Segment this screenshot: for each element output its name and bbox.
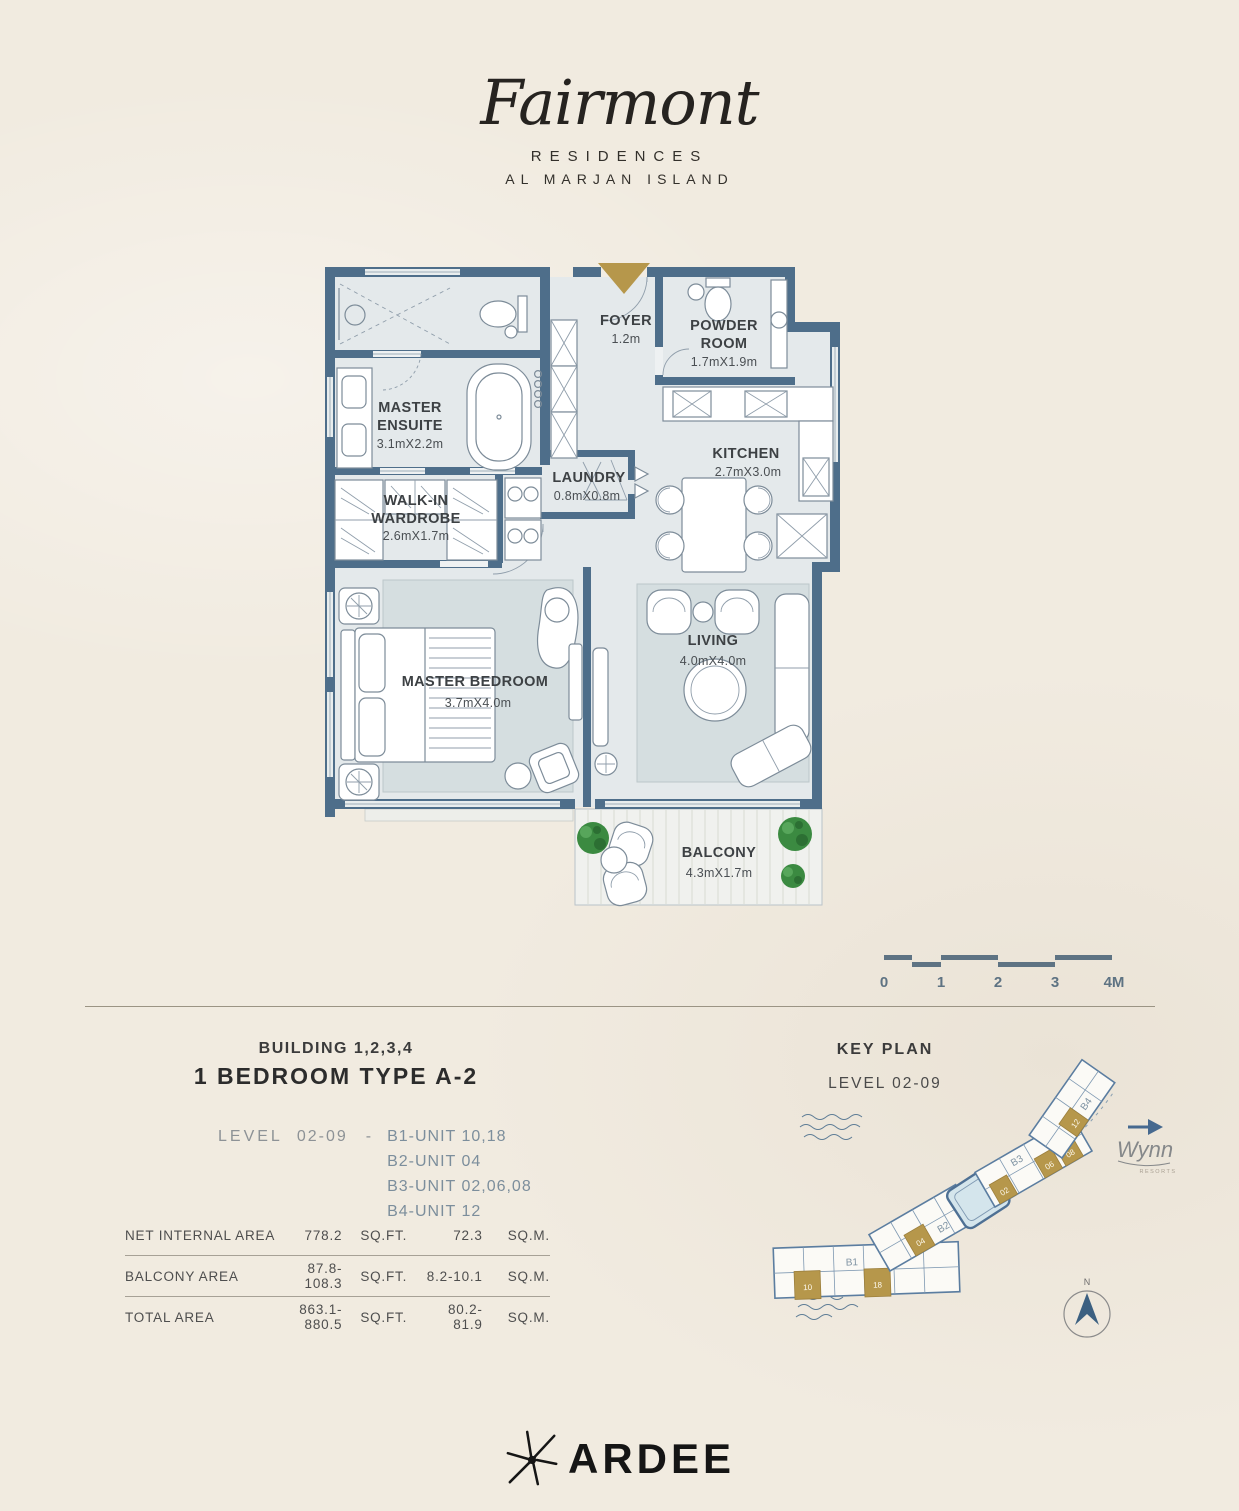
ardee-wordmark: ARDEE (568, 1435, 735, 1483)
svg-text:0.8mX0.8m: 0.8mX0.8m (554, 489, 621, 503)
brand-header: Fairmont RESIDENCES AL MARJAN ISLAND (0, 72, 1239, 187)
svg-text:1.2m: 1.2m (612, 332, 641, 346)
area-sqft-unit: SQ.FT. (342, 1269, 420, 1284)
scale-tick-1: 1 (937, 974, 945, 991)
unit-type-title: 1 BEDROOM TYPE A-2 (136, 1063, 536, 1090)
plant-icon (778, 817, 812, 851)
svg-text:ROOM: ROOM (701, 336, 748, 352)
area-sqm-unit: SQ.M. (483, 1228, 550, 1243)
svg-text:3.1mX2.2m: 3.1mX2.2m (377, 437, 444, 451)
brand-residences: RESIDENCES (0, 148, 1239, 165)
area-sqft-value: 863.1-880.5 (276, 1302, 343, 1332)
room-label-wardrobe: WALK-IN (384, 493, 449, 509)
area-sqm-value: 80.2-81.9 (421, 1302, 483, 1332)
table-row: TOTAL AREA 863.1-880.5 SQ.FT. 80.2-81.9 … (125, 1297, 550, 1337)
fairmont-logo: Fairmont (0, 72, 1239, 134)
building-label-b1: B1 (846, 1257, 859, 1268)
area-sqft-value: 778.2 (276, 1228, 343, 1243)
svg-text:4.3mX1.7m: 4.3mX1.7m (686, 866, 753, 880)
svg-text:2.7mX3.0m: 2.7mX3.0m (715, 465, 782, 479)
area-sqm-value: 8.2-10.1 (421, 1269, 483, 1284)
keyplan-building-b4: 12 B4 (1029, 1060, 1115, 1158)
unit-list: B1-UNIT 10,18 B2-UNIT 04 B3-UNIT 02,06,0… (387, 1128, 532, 1221)
keyplan-building-b1: 10 18 B1 (773, 1242, 960, 1300)
developer-logo: ARDEE (0, 1430, 1239, 1488)
svg-text:Wynn: Wynn (1117, 1137, 1173, 1162)
table-row: BALCONY AREA 87.8-108.3 SQ.FT. 8.2-10.1 … (125, 1256, 550, 1296)
room-label-laundry: LAUNDRY (552, 470, 625, 486)
area-row-label: TOTAL AREA (125, 1310, 276, 1325)
area-table: NET INTERNAL AREA 778.2 SQ.FT. 72.3 SQ.M… (125, 1215, 550, 1337)
plant-icon (577, 822, 609, 854)
area-row-label: BALCONY AREA (125, 1269, 276, 1284)
plant-icon (781, 864, 805, 888)
brand-island: AL MARJAN ISLAND (0, 171, 1239, 187)
ardee-star-icon (504, 1430, 562, 1488)
area-sqm-unit: SQ.M. (483, 1269, 550, 1284)
building-label: BUILDING 1,2,3,4 (136, 1040, 536, 1058)
floorplan-drawing: MASTER ENSUITE 3.1mX2.2m FOYER 1.2m POWD… (325, 262, 840, 912)
scale-tick-0: 0 (880, 974, 888, 991)
area-sqft-value: 87.8-108.3 (276, 1261, 343, 1291)
table-row: NET INTERNAL AREA 778.2 SQ.FT. 72.3 SQ.M… (125, 1215, 550, 1255)
scale-tick-2: 2 (994, 974, 1002, 991)
svg-text:ENSUITE: ENSUITE (377, 418, 443, 434)
room-label-powder: POWDER (690, 318, 758, 334)
brochure-page: Fairmont RESIDENCES AL MARJAN ISLAND (0, 0, 1239, 1511)
svg-text:1.7mX1.9m: 1.7mX1.9m (691, 355, 758, 369)
svg-text:10: 10 (803, 1283, 813, 1292)
svg-text:4.0mX4.0m: 4.0mX4.0m (680, 654, 747, 668)
area-sqm-value: 72.3 (421, 1228, 483, 1243)
room-label-living: LIVING (688, 633, 739, 649)
level-label: LEVEL (218, 1128, 283, 1146)
svg-text:2.6mX1.7m: 2.6mX1.7m (383, 529, 450, 543)
foyer-closets (551, 320, 577, 458)
svg-text:3.7mX4.0m: 3.7mX4.0m (445, 696, 512, 710)
svg-text:WARDROBE: WARDROBE (371, 511, 460, 527)
svg-text:18: 18 (873, 1280, 883, 1289)
unit-list-item: B1-UNIT 10,18 (387, 1128, 532, 1146)
unit-list-item: B3-UNIT 02,06,08 (387, 1178, 532, 1196)
room-label-kitchen: KITCHEN (712, 446, 779, 462)
level-value: 02-09 (297, 1128, 348, 1146)
key-plan-drawing: 10 18 B1 04 B2 02 06 08 B3 (760, 1055, 1195, 1355)
room-label-ensuite: MASTER (378, 400, 442, 416)
svg-text:N: N (1084, 1277, 1091, 1287)
area-sqft-unit: SQ.FT. (342, 1228, 420, 1243)
area-row-label: NET INTERNAL AREA (125, 1228, 276, 1243)
room-label-balcony: BALCONY (682, 845, 757, 861)
direction-arrow-icon (1128, 1119, 1163, 1135)
scale-tick-3: 3 (1051, 974, 1059, 991)
room-label-foyer: FOYER (600, 313, 652, 329)
scale-tick-4m: 4M (1104, 974, 1125, 991)
room-label-bedroom: MASTER BEDROOM (402, 674, 549, 690)
level-units-row: LEVEL 02-09 - B1-UNIT 10,18 B2-UNIT 04 B… (218, 1128, 638, 1221)
level-dash: - (366, 1128, 371, 1146)
area-sqft-unit: SQ.FT. (342, 1310, 420, 1325)
unit-list-item: B2-UNIT 04 (387, 1153, 532, 1171)
compass-icon: N (1064, 1277, 1110, 1337)
section-divider (85, 1006, 1155, 1007)
scale-bar: 0 1 2 3 4M (862, 938, 1142, 996)
area-sqm-unit: SQ.M. (483, 1310, 550, 1325)
svg-text:RESORTS: RESORTS (1140, 1169, 1177, 1175)
wynn-resorts-logo: Wynn RESORTS (1117, 1137, 1177, 1175)
